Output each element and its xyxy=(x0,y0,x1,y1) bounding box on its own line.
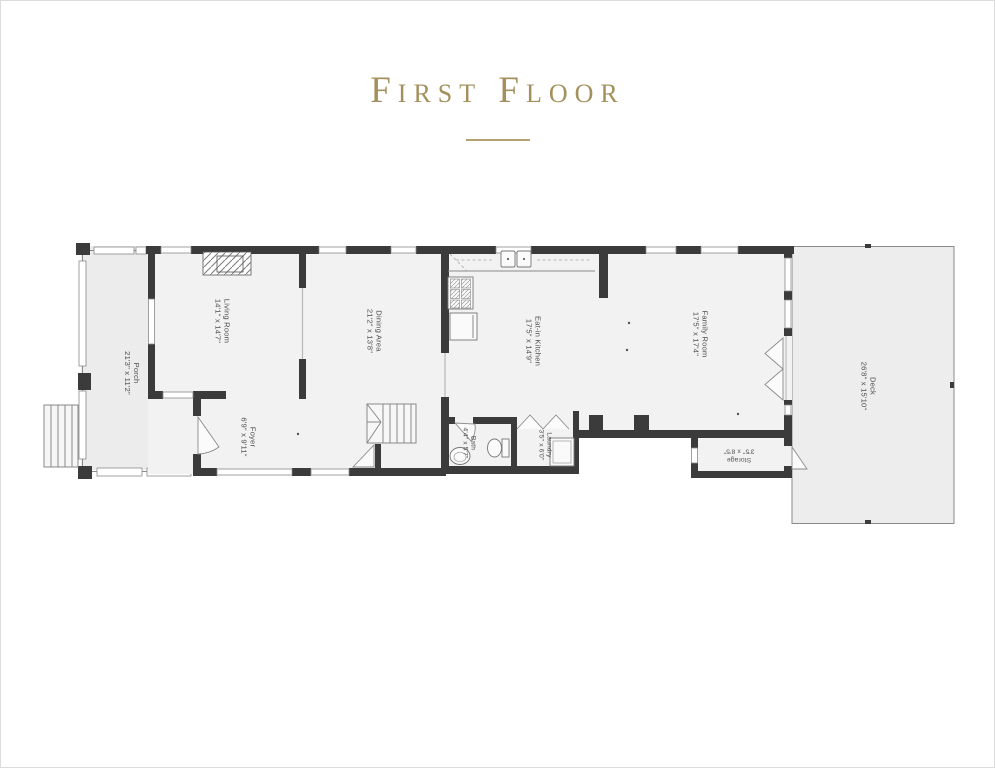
room-dim-deck: 26'8" x 15'10" xyxy=(860,362,869,411)
room-label-porch: Porch xyxy=(132,363,141,384)
room-dim-storage: 3'5" x 8'5" xyxy=(723,448,754,455)
room-label-living-room: Living Room xyxy=(223,299,232,343)
floor-plan-page: First Floor xyxy=(0,0,995,768)
washer-icon xyxy=(550,438,574,466)
room-label-laundry: Laundry xyxy=(546,432,553,458)
room-label-bath: Bath xyxy=(470,436,477,450)
refrigerator-icon xyxy=(450,313,477,340)
room-label-dining-area: Dining Area xyxy=(375,310,384,352)
room-dim-dining-area: 21'2" x 13'8" xyxy=(366,309,375,353)
room-dim-family-room: 17'5" x 17'4" xyxy=(692,312,701,356)
room-label-foyer: Foyer xyxy=(249,427,258,448)
room-label-family-room: Family Room xyxy=(701,311,710,358)
room-label-deck: Deck xyxy=(869,377,878,395)
room-dim-bath: 4'4" x 5'7" xyxy=(462,427,469,458)
porch-steps-icon xyxy=(44,405,78,467)
room-dim-foyer: 6'9" x 9'11" xyxy=(240,417,249,456)
floor-plan-svg: Porch 21'3" x 11'2" Living Room 14'1" x … xyxy=(1,1,995,768)
toilet-icon xyxy=(488,439,510,457)
room-dim-kitchen: 17'5" x 14'9" xyxy=(525,319,534,363)
room-dim-living-room: 14'1" x 14'7" xyxy=(214,299,223,343)
room-dim-porch: 21'3" x 11'2" xyxy=(123,351,132,395)
staircase-icon xyxy=(367,404,416,443)
stove-icon xyxy=(448,277,473,309)
room-label-storage: Storage xyxy=(727,456,752,463)
fireplace-icon xyxy=(203,252,251,275)
room-dim-laundry: 3'5" x 6'0" xyxy=(538,429,545,460)
room-label-kitchen: Eat-in Kitchen xyxy=(534,316,543,366)
